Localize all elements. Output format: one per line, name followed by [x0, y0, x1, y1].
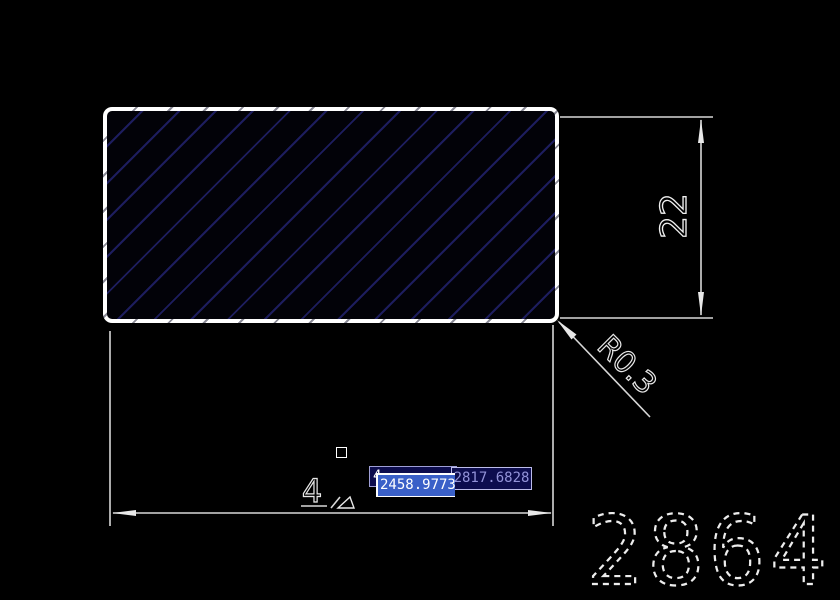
arrowhead-up	[698, 119, 704, 143]
dimension-text-fragment-triangle	[338, 497, 354, 508]
arrowhead-down	[698, 292, 704, 316]
pickbox-cursor	[336, 447, 347, 458]
dynamic-input-x-value[interactable]: 2458.9773	[378, 475, 455, 496]
arrowhead-left	[112, 510, 136, 516]
vertical-dimension[interactable]: 22	[560, 117, 713, 318]
radius-arrowhead	[557, 320, 577, 340]
horizontal-dimension[interactable]: 4	[110, 325, 553, 526]
dynamic-input-y-field[interactable]: 2817.6828	[451, 467, 532, 490]
radius-dimension[interactable]: R0.3	[557, 320, 663, 417]
cad-drawing-canvas[interactable]: 22 R0.3 4 2864 4 2458.9773 2	[0, 0, 840, 600]
horizontal-dimension-text-partial: 4	[302, 472, 322, 510]
vertical-dimension-text: 22	[654, 193, 695, 239]
dimension-text-fragment-stroke	[331, 497, 340, 508]
selected-text-2864[interactable]: 2864	[586, 497, 831, 600]
dynamic-input-x-field[interactable]: 2458.9773	[376, 473, 455, 497]
dimension-overlay: 22 R0.3 4 2864	[0, 0, 840, 600]
arrowhead-right	[528, 510, 552, 516]
dynamic-input-y-value: 2817.6828	[454, 469, 530, 488]
